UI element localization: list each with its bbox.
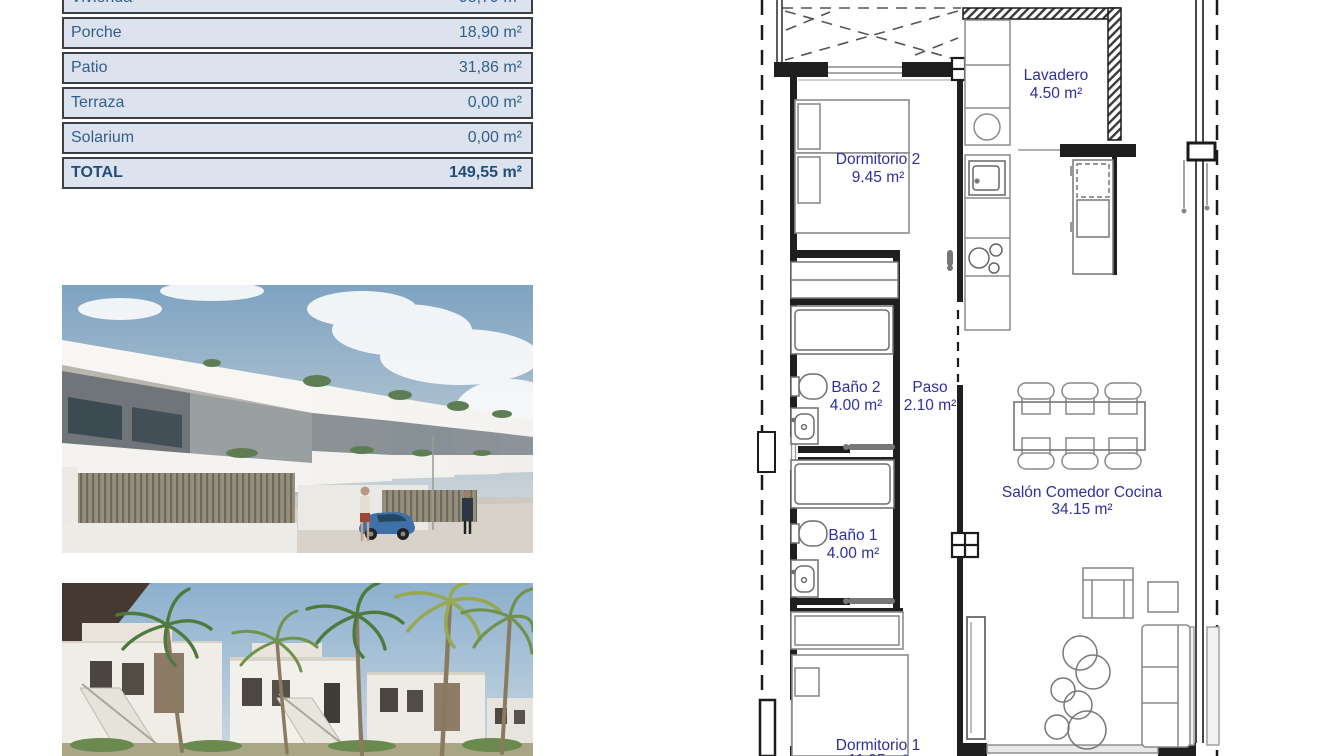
room-label-dormitorio-2: Dormitorio 2: [836, 151, 920, 168]
room-label-bano-2: Baño 2: [831, 379, 880, 396]
window-bottom: [987, 745, 1158, 753]
living-room-furniture: [967, 568, 1190, 747]
room-area-dormitorio-2: 9.45 m²: [852, 169, 905, 186]
bathroom-2-fixtures: [791, 306, 893, 444]
room-area-bano-1: 4.00 m²: [827, 545, 880, 562]
room-area-salon: 34.15 m²: [1051, 501, 1112, 518]
appliance-column: [1018, 150, 1113, 274]
room-area-dormitorio-1: 11.95 m²: [848, 752, 908, 756]
wardrobe: [791, 262, 898, 298]
laundry-units: [965, 20, 1010, 145]
kitchen-counter: [965, 155, 1010, 330]
bed-dormitorio-1: [791, 612, 908, 756]
room-area-paso: 2.10 m²: [904, 397, 957, 414]
floor-plan: Dormitorio 2 9.45 m² Lavadero 4.50 m² Ba…: [0, 0, 1319, 756]
room-label-paso: Paso: [912, 379, 947, 396]
dining-set: [1014, 383, 1145, 469]
room-label-salon: Salón Comedor Cocina: [1002, 484, 1163, 501]
room-area-lavadero: 4.50 m²: [1030, 85, 1083, 102]
hatched-wall-top: [963, 8, 1120, 19]
room-label-bano-1: Baño 1: [828, 527, 877, 544]
plant-decor: [1045, 636, 1110, 749]
pergola-area: [782, 8, 961, 60]
room-area-bano-2: 4.00 m²: [830, 397, 883, 414]
room-label-lavadero: Lavadero: [1024, 67, 1089, 84]
hatched-wall-right: [1108, 8, 1121, 140]
